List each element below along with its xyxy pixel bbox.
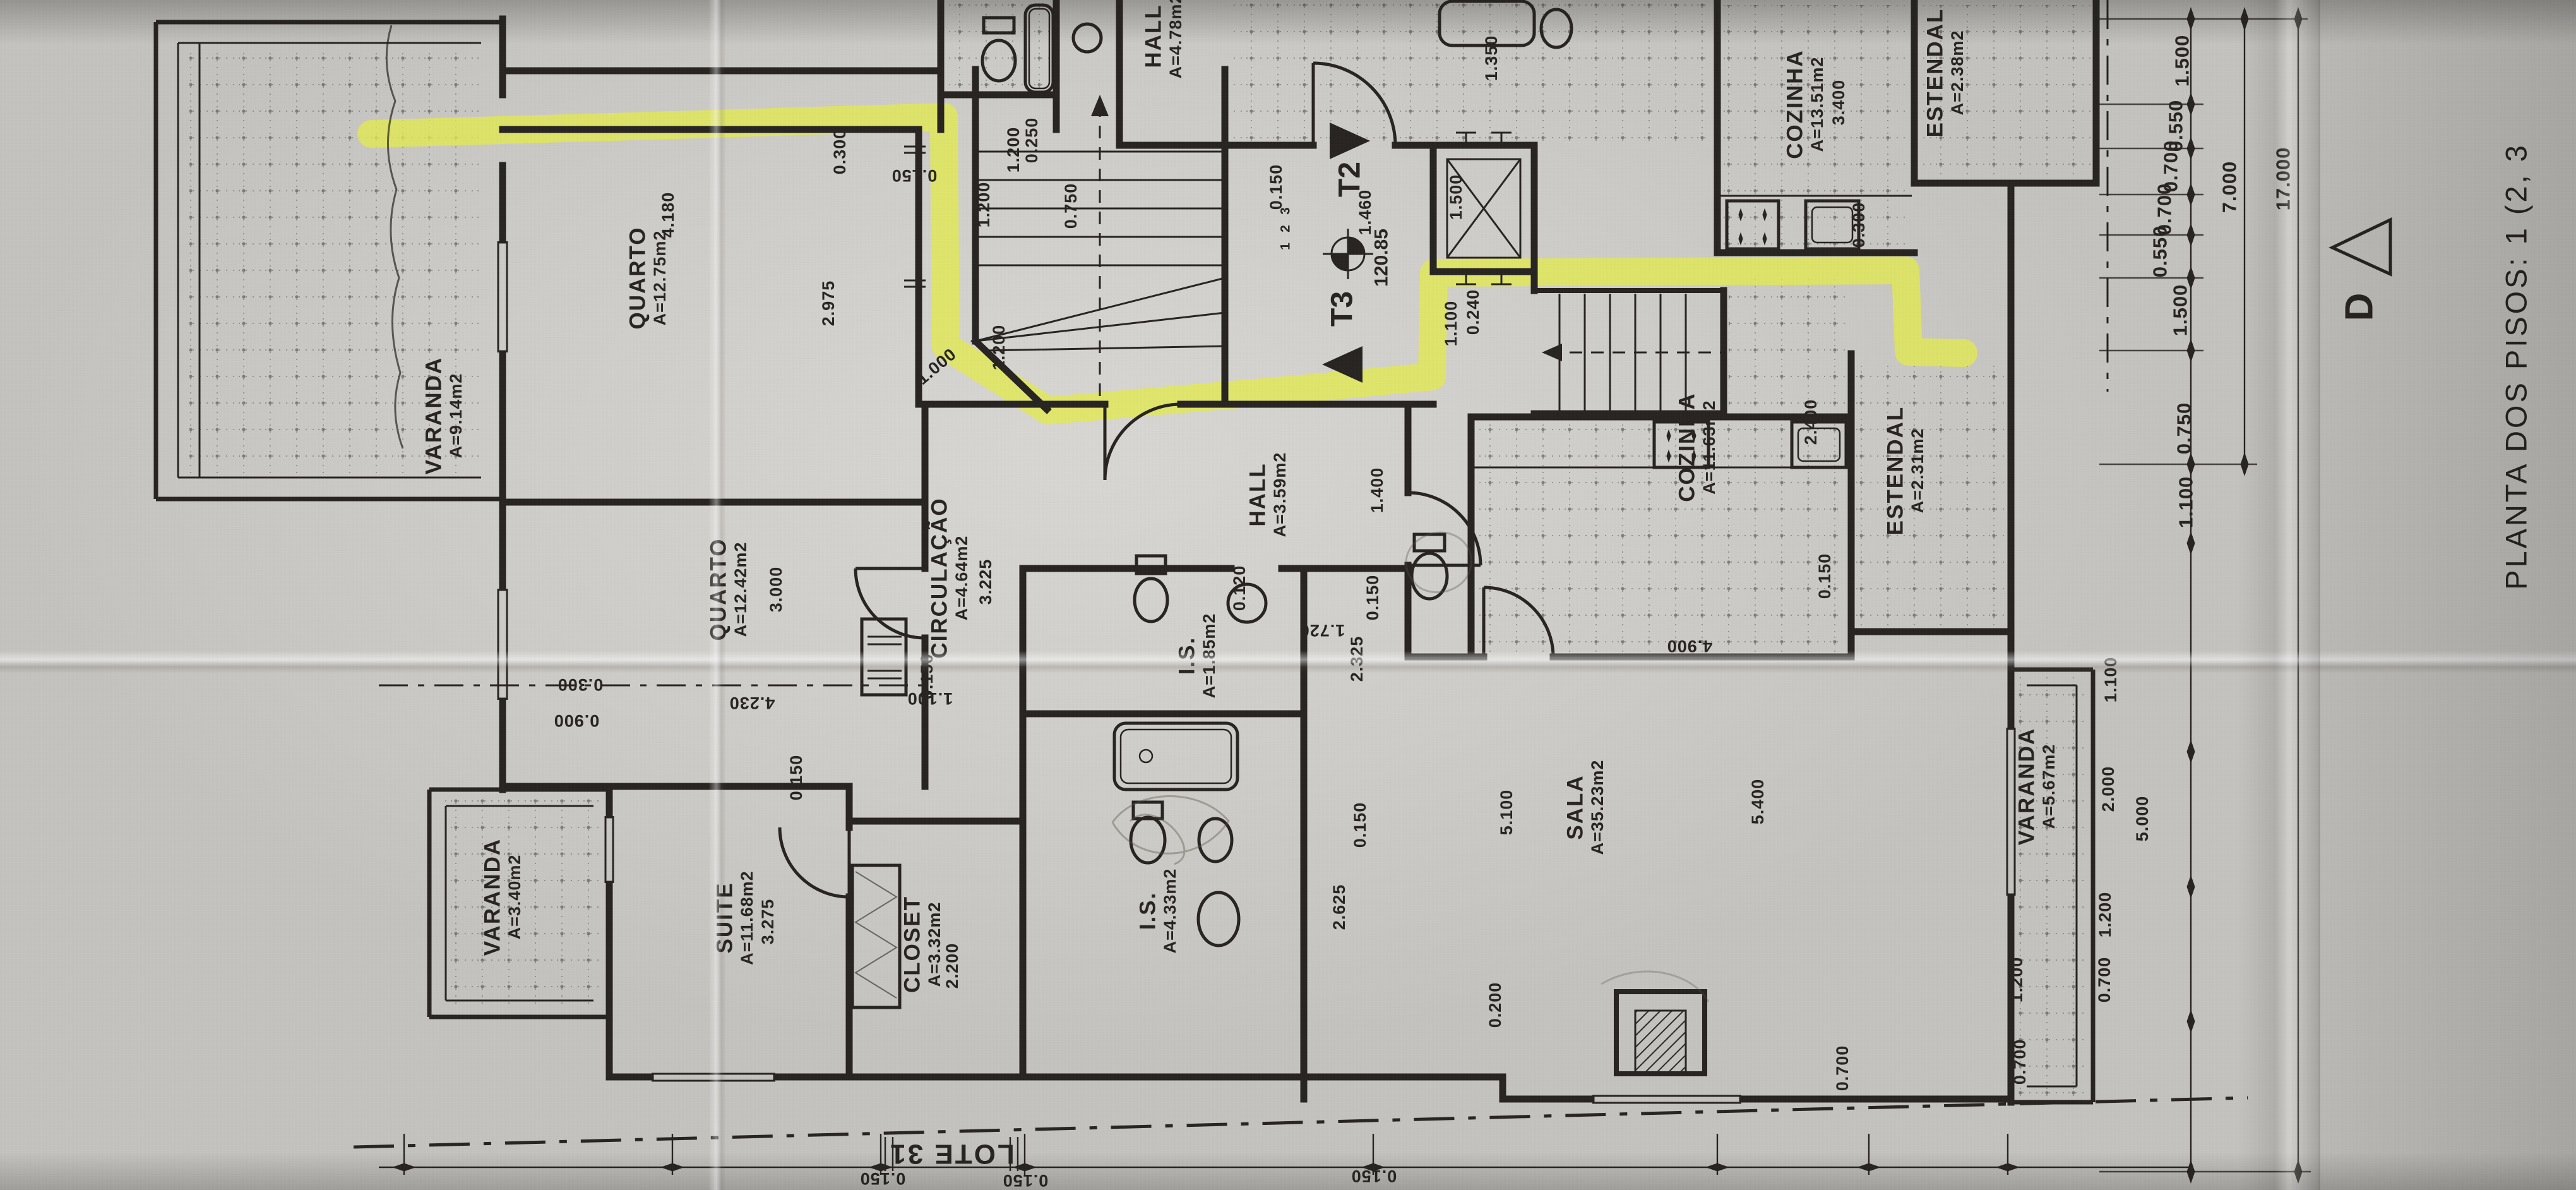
dim-label: 0.150 (1003, 1171, 1049, 1190)
dim-label: 5.000 (2133, 796, 2152, 842)
dim-label: 0.300 (830, 129, 849, 175)
dim-label: 0.700 (2010, 1039, 2029, 1085)
lot-label: LOTE 31 (888, 1139, 1015, 1170)
room-area-label: A=4.33m2 (1160, 868, 1179, 954)
room-area-label: A=3.32m2 (925, 902, 944, 987)
dim-label: 2.000 (2099, 766, 2118, 812)
dim-label: 4.180 (659, 192, 677, 238)
dim-label: 3.000 (766, 567, 785, 613)
dim-label: 5.100 (1497, 790, 1516, 836)
section-marker-label: D (2338, 293, 2382, 322)
dim-label: 0.300 (558, 675, 604, 694)
sheet-title: PLANTA DOS PISOS: 1 (2, 3 (2500, 143, 2533, 590)
room-area-label: A=4.64m2 (952, 536, 971, 621)
door-swings (780, 63, 1553, 897)
dim-label: 0.150 (1351, 1167, 1397, 1186)
lot-boundary-line (354, 1098, 2248, 1147)
room-area-label: A=12.42m2 (731, 542, 750, 637)
room-label: CLOSET (900, 896, 925, 993)
dim-label: 0.750 (2173, 402, 2195, 455)
dim-label: 2.975 (819, 280, 838, 327)
hall-tiles (1231, 3, 1711, 141)
room-area-label: A=2.38m2 (1948, 30, 1967, 116)
landing-elevation-value: 120.85 (1371, 229, 1392, 287)
hall-tiles (1729, 275, 1849, 411)
level-benchmark-icon (1323, 229, 1373, 279)
room-label: COZINHA (1783, 49, 1808, 159)
dim-label: 1.200 (974, 182, 993, 228)
dim-label: 1.500 (1446, 174, 1465, 220)
dim-label: 0.700 (1833, 1045, 1852, 1091)
room-area-label: A=4.78m2 (1166, 0, 1185, 78)
room-area-label: A=12.75m2 (650, 231, 669, 326)
dim-label: 0.250 (1022, 117, 1041, 164)
dim-label: 3.275 (758, 899, 777, 945)
dim-label: 1.200 (1004, 127, 1023, 173)
dim-label: 1.100 (2175, 476, 2197, 529)
dim-label: 0.150 (917, 654, 936, 700)
room-label: ESTENDAL (1923, 8, 1948, 138)
dim-label: 0.150 (1815, 553, 1834, 599)
dim-label: 1.460 (1356, 189, 1374, 236)
room-label: CIRCULAÇÃO (927, 497, 952, 658)
dim-label: 4.900 (1667, 637, 1713, 656)
dim-label: 1.200 (989, 325, 1008, 371)
dim-label: 0.150 (787, 755, 806, 801)
dim-label: 0.550 (2149, 225, 2171, 278)
fireplace (1635, 1011, 1686, 1074)
t3-unit-label: T3 (1326, 291, 1359, 327)
dim-label: 1.200 (2007, 957, 2026, 1003)
section-marker: D (2332, 220, 2390, 321)
kitchen-tiles (1477, 422, 1844, 652)
room-label: QUARTO (707, 538, 731, 640)
room-area-label: A=35.23m2 (1588, 760, 1607, 855)
stair-step-number: 1 (1279, 243, 1293, 250)
room-label: VARANDA (2015, 728, 2039, 845)
room-area-label: A=3.40m2 (505, 855, 524, 940)
dim-label: 0.150 (1363, 575, 1382, 621)
room-area-label: A=3.59m2 (1270, 452, 1289, 538)
dim-label: 0.200 (1486, 982, 1505, 1028)
dim-label: 1.720 (1299, 621, 1345, 640)
room-label: COZINHA (1675, 392, 1700, 502)
room-area-label: A=9.14m2 (446, 373, 465, 459)
dim-label: 1.200 (2096, 892, 2114, 938)
dim-label: 0.150 (1267, 164, 1285, 210)
dim-label: 0.150 (891, 166, 938, 185)
dim-label: 1.400 (1368, 467, 1386, 514)
estendal-tiles (1856, 361, 2008, 627)
stair-direction-arrow (1091, 95, 1109, 116)
dim-label: 5.400 (1748, 779, 1767, 825)
floor-plan-drawing: T2 T3 120.85 1 2 3 D PLANTA DOS PISOS: 1… (0, 0, 2576, 1190)
dim-label: 1.500 (2169, 284, 2191, 337)
stair-step-number: 2 (1279, 225, 1293, 232)
room-label: QUARTO (626, 226, 650, 329)
room-area-label: A=5.67m2 (2039, 744, 2058, 829)
room-label: ESTENDAL (1883, 406, 1908, 536)
stair-direction-arrow (1542, 344, 1562, 361)
unit-markers: T2 T3 120.85 1 2 3 (1279, 123, 1392, 383)
dim-label: 3.225 (976, 559, 995, 605)
room-area-label: A=11.63m2 (1700, 400, 1719, 494)
dim-label: 1.350 (1482, 35, 1501, 81)
dim-label: 7.000 (2219, 161, 2241, 213)
room-label: I.S. (1136, 892, 1160, 930)
dim-label: 0.700 (2095, 957, 2114, 1003)
room-label: VARANDA (480, 838, 505, 956)
dim-label: 0.300 (1849, 202, 1868, 248)
dim-label: 3.400 (1829, 80, 1848, 126)
room-label: I.S. (1175, 637, 1200, 675)
dim-label: 2.400 (1801, 399, 1820, 445)
room-area-label: A=11.68m2 (737, 870, 756, 965)
room-label: SUITE (713, 882, 737, 953)
room-area-label: A=2.31m2 (1908, 428, 1927, 514)
dim-label: 4.230 (729, 694, 775, 712)
dim-label: 2.325 (1347, 636, 1366, 682)
dim-label: 1.500 (2171, 35, 2193, 87)
room-label: VARANDA (422, 357, 446, 474)
dim-label: 1.100 (2101, 657, 2120, 703)
room-label: HALL (1142, 4, 1166, 68)
dim-label: 2.200 (943, 943, 962, 989)
dim-label: 0.900 (554, 711, 600, 730)
dim-label: 17.000 (2272, 147, 2294, 211)
room-area-label: A=1.85m2 (1200, 613, 1219, 699)
room-label: SALA (1563, 774, 1588, 839)
floor-hatch-layer (189, 3, 2091, 1096)
dim-label: 0.240 (1464, 289, 1482, 335)
dim-label: 0.750 (1061, 183, 1080, 229)
dim-label: 1.100 (1441, 301, 1460, 347)
room-area-label: A=13.51m2 (1808, 57, 1827, 152)
dim-label: 0.150 (1351, 802, 1369, 848)
dim-label: 0.150 (860, 1169, 906, 1188)
dim-label: 2.625 (1330, 884, 1349, 930)
dim-label: 0.120 (1230, 565, 1249, 611)
room-label: HALL (1246, 462, 1270, 526)
